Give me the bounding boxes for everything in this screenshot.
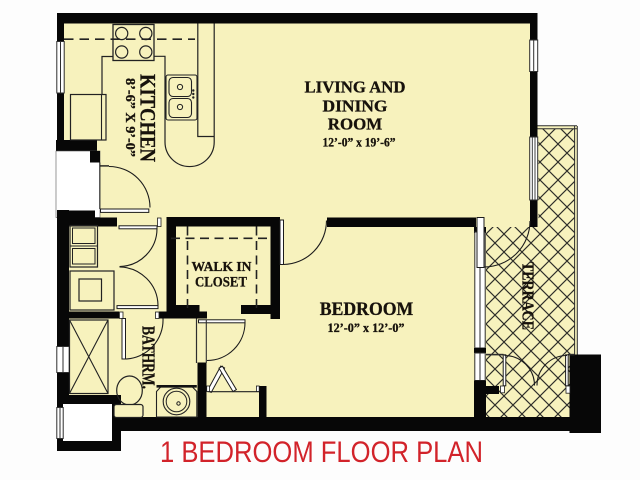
svg-text:BEDROOM: BEDROOM <box>320 300 414 320</box>
svg-text:DINING: DINING <box>323 97 388 116</box>
svg-text:LIVING AND: LIVING AND <box>305 78 406 97</box>
svg-text:ROOM: ROOM <box>328 115 383 134</box>
svg-text:8’-6” X 9’-0”: 8’-6” X 9’-0” <box>122 78 137 157</box>
svg-text:WALK IN: WALK IN <box>192 260 252 275</box>
svg-text:CLOSET: CLOSET <box>195 275 247 291</box>
svg-text:12’-0” x 19’-6”: 12’-0” x 19’-6” <box>323 136 396 150</box>
svg-text:1 BEDROOM FLOOR PLAN: 1 BEDROOM FLOOR PLAN <box>160 436 483 469</box>
svg-text:TERRACE: TERRACE <box>519 262 538 330</box>
svg-text:BATHRM.: BATHRM. <box>138 326 158 389</box>
svg-text:KITCHEN: KITCHEN <box>136 74 161 162</box>
svg-text:12’-0” x 12’-0”: 12’-0” x 12’-0” <box>328 321 405 335</box>
